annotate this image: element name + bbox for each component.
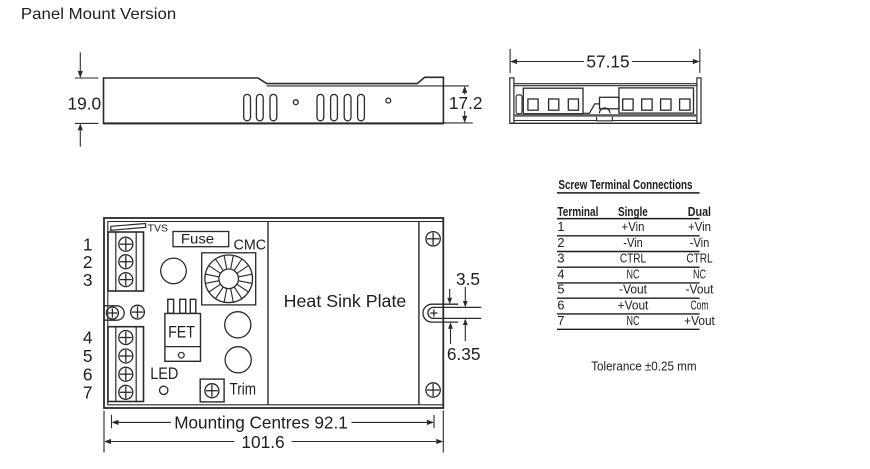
- svg-text:LED: LED: [150, 364, 178, 383]
- svg-text:3: 3: [557, 251, 564, 266]
- svg-text:Panel Mount Version: Panel Mount Version: [21, 6, 176, 23]
- svg-text:-Vout: -Vout: [686, 282, 714, 297]
- svg-text:CTRL: CTRL: [686, 251, 712, 266]
- svg-text:57.15: 57.15: [586, 52, 629, 72]
- svg-text:3: 3: [83, 270, 93, 290]
- svg-text:CTRL: CTRL: [620, 251, 646, 266]
- svg-text:101.6: 101.6: [241, 432, 284, 452]
- svg-text:+Vin: +Vin: [622, 219, 645, 234]
- svg-text:+Vin: +Vin: [688, 219, 711, 234]
- svg-text:Terminal: Terminal: [557, 204, 598, 219]
- svg-text:-Vin: -Vin: [623, 235, 643, 250]
- svg-text:CMC: CMC: [234, 238, 267, 254]
- svg-text:Com: Com: [690, 297, 708, 312]
- svg-text:NC: NC: [693, 266, 706, 281]
- svg-text:Trim: Trim: [230, 381, 257, 399]
- svg-text:Heat Sink Plate: Heat Sink Plate: [284, 291, 407, 311]
- svg-text:NC: NC: [627, 266, 640, 281]
- svg-text:-Vout: -Vout: [619, 282, 647, 297]
- svg-text:6.35: 6.35: [447, 344, 481, 364]
- svg-text:6: 6: [557, 297, 564, 312]
- svg-text:17.2: 17.2: [449, 93, 483, 113]
- svg-text:Dual: Dual: [688, 204, 711, 219]
- svg-text:FET: FET: [168, 323, 195, 342]
- svg-text:-Vin: -Vin: [690, 235, 710, 250]
- svg-text:+Vout: +Vout: [684, 313, 715, 328]
- svg-text:5: 5: [557, 282, 564, 297]
- svg-text:+Vout: +Vout: [618, 297, 649, 312]
- svg-text:19.0: 19.0: [67, 93, 101, 113]
- svg-text:6: 6: [83, 364, 93, 384]
- svg-text:Screw Terminal Connections: Screw Terminal Connections: [558, 177, 692, 192]
- svg-text:1: 1: [557, 219, 564, 234]
- svg-text:Fuse: Fuse: [181, 230, 214, 246]
- svg-text:5: 5: [83, 346, 93, 366]
- svg-text:4: 4: [83, 328, 93, 348]
- svg-text:NC: NC: [627, 313, 640, 328]
- svg-text:7: 7: [557, 313, 564, 328]
- svg-text:4: 4: [557, 266, 564, 281]
- svg-text:Single: Single: [618, 204, 648, 219]
- svg-text:Mounting Centres 92.1: Mounting Centres 92.1: [174, 413, 348, 433]
- svg-text:Tolerance ±0.25 mm: Tolerance ±0.25 mm: [591, 358, 696, 373]
- svg-text:3.5: 3.5: [456, 269, 480, 289]
- svg-text:7: 7: [83, 383, 93, 403]
- svg-text:TVS: TVS: [148, 222, 168, 234]
- svg-text:2: 2: [557, 235, 564, 250]
